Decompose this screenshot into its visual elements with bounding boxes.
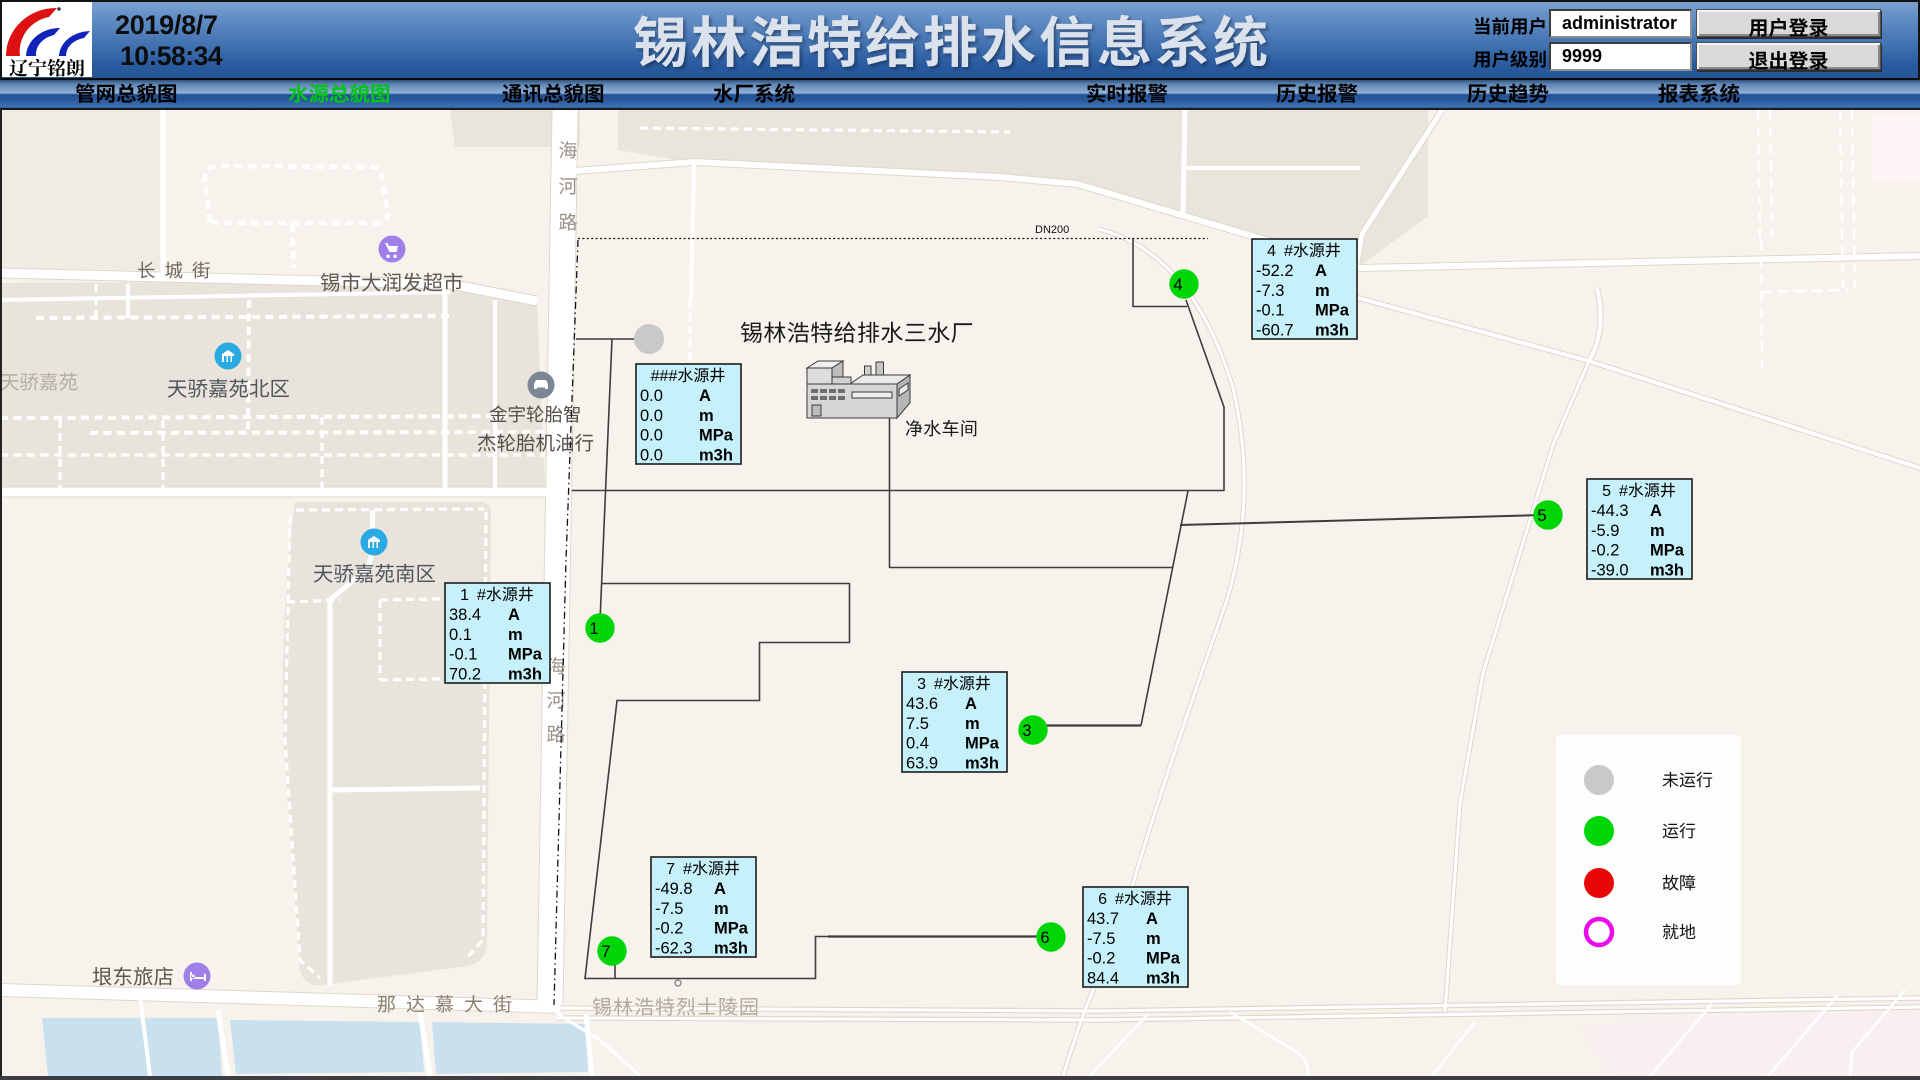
svg-text:m3h: m3h (714, 939, 748, 957)
svg-text:MPa: MPa (714, 920, 749, 938)
svg-text:天骄嘉苑南区: 天骄嘉苑南区 (313, 563, 436, 586)
svg-text:38.4: 38.4 (449, 606, 481, 624)
svg-text:7: 7 (601, 943, 610, 961)
svg-text:天骄嘉苑: 天骄嘉苑 (0, 372, 78, 394)
svg-text:A: A (508, 606, 520, 624)
svg-text:-0.1: -0.1 (449, 646, 477, 664)
svg-text:0.4: 0.4 (906, 735, 929, 753)
svg-text:63.9: 63.9 (906, 754, 938, 772)
svg-text:A: A (1650, 502, 1662, 520)
svg-text:锡林浩特烈士陵园: 锡林浩特烈士陵园 (592, 997, 760, 1019)
svg-text:m: m (508, 626, 523, 644)
svg-text:-7.3: -7.3 (1256, 282, 1284, 300)
svg-text:m: m (699, 407, 714, 425)
svg-text:MPa: MPa (508, 646, 543, 664)
svg-text:海河路: 海河路 (556, 136, 578, 244)
svg-text:长城街: 长城街 (137, 260, 220, 281)
svg-text:DN200: DN200 (1035, 224, 1069, 236)
svg-text:-60.7: -60.7 (1256, 321, 1294, 339)
svg-text:0.0: 0.0 (640, 387, 663, 405)
svg-text:m: m (1650, 522, 1665, 540)
svg-text:锡市大润发超市: 锡市大润发超市 (320, 272, 464, 295)
svg-text:垠东旅店: 垠东旅店 (92, 966, 174, 989)
svg-text:净水车间: 净水车间 (905, 419, 978, 439)
svg-text:A: A (699, 387, 711, 405)
svg-text:m: m (1315, 282, 1330, 300)
svg-text:1: 1 (589, 620, 598, 638)
svg-text:金宇轮胎智: 金宇轮胎智 (489, 404, 582, 425)
svg-text:6: 6 (1040, 929, 1049, 947)
svg-text:-0.1: -0.1 (1256, 302, 1284, 320)
svg-text:m3h: m3h (1315, 321, 1349, 339)
svg-text:-7.5: -7.5 (1087, 930, 1115, 948)
svg-text:70.2: 70.2 (449, 665, 481, 683)
svg-text:m3h: m3h (699, 446, 733, 464)
svg-text:7.5: 7.5 (906, 715, 929, 733)
svg-text:MPa: MPa (965, 735, 1000, 753)
svg-text:MPa: MPa (1146, 950, 1181, 968)
svg-text:-0.2: -0.2 (1591, 542, 1619, 560)
svg-text:43.6: 43.6 (906, 695, 938, 713)
svg-text:-62.3: -62.3 (655, 939, 693, 957)
svg-text:0.1: 0.1 (449, 626, 472, 644)
svg-text:m: m (714, 900, 729, 918)
svg-text:0.0: 0.0 (640, 446, 663, 464)
svg-text:-5.9: -5.9 (1591, 522, 1619, 540)
svg-text:MPa: MPa (699, 427, 734, 445)
svg-text:3: 3 (1022, 722, 1031, 740)
svg-text:0.0: 0.0 (640, 407, 663, 425)
svg-text:A: A (1315, 262, 1327, 280)
svg-text:###水源井: ###水源井 (651, 367, 726, 385)
svg-text:A: A (714, 880, 726, 898)
svg-text:-7.5: -7.5 (655, 900, 683, 918)
svg-text:-44.3: -44.3 (1591, 502, 1629, 520)
svg-text:84.4: 84.4 (1087, 969, 1119, 987)
svg-text:m3h: m3h (965, 754, 999, 772)
svg-text:4 #水源井: 4 #水源井 (1267, 242, 1341, 260)
svg-text:m: m (965, 715, 980, 733)
svg-text:0.0: 0.0 (640, 427, 663, 445)
svg-text:3 #水源井: 3 #水源井 (917, 675, 991, 693)
svg-text:m3h: m3h (1650, 561, 1684, 579)
svg-text:-0.2: -0.2 (655, 920, 683, 938)
svg-text:6 #水源井: 6 #水源井 (1098, 890, 1172, 908)
svg-text:7 #水源井: 7 #水源井 (666, 860, 740, 878)
svg-text:运行: 运行 (1662, 822, 1696, 841)
svg-text:m: m (1146, 930, 1161, 948)
svg-text:43.7: 43.7 (1087, 910, 1119, 928)
svg-text:A: A (965, 695, 977, 713)
svg-text:A: A (1146, 910, 1158, 928)
svg-text:杰轮胎机油行: 杰轮胎机油行 (477, 433, 594, 455)
svg-text:5: 5 (1537, 507, 1546, 525)
svg-text:锡林浩特给排水三水厂: 锡林浩特给排水三水厂 (740, 320, 974, 346)
svg-text:MPa: MPa (1650, 542, 1685, 560)
svg-text:天骄嘉苑北区: 天骄嘉苑北区 (167, 378, 290, 401)
svg-text:就地: 就地 (1662, 923, 1696, 942)
svg-text:1 #水源井: 1 #水源井 (460, 586, 534, 604)
svg-text:未运行: 未运行 (1662, 771, 1713, 790)
svg-text:那达慕大街: 那达慕大街 (377, 995, 522, 1016)
svg-text:-39.0: -39.0 (1591, 561, 1629, 579)
svg-text:m3h: m3h (508, 665, 542, 683)
svg-text:-49.8: -49.8 (655, 880, 693, 898)
svg-text:5 #水源井: 5 #水源井 (1602, 482, 1676, 500)
svg-text:4: 4 (1173, 276, 1182, 294)
svg-text:-52.2: -52.2 (1256, 262, 1294, 280)
svg-text:MPa: MPa (1315, 302, 1350, 320)
svg-text:-0.2: -0.2 (1087, 950, 1115, 968)
svg-text:m3h: m3h (1146, 969, 1180, 987)
svg-text:故障: 故障 (1662, 874, 1696, 893)
